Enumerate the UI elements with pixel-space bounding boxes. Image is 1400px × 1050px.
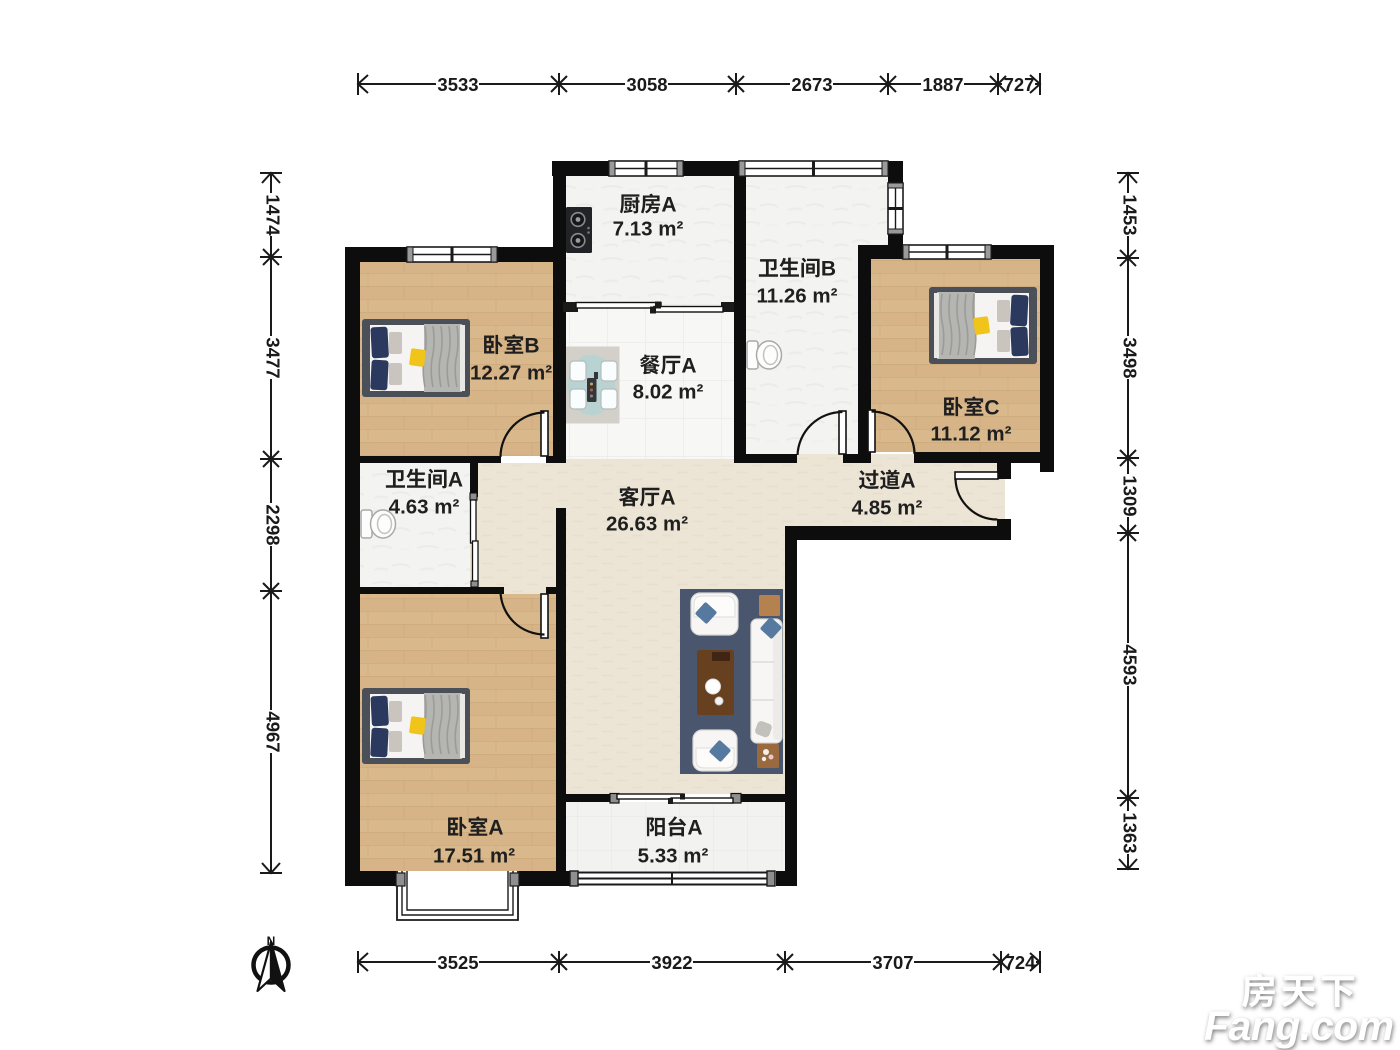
svg-text:4593: 4593 bbox=[1120, 644, 1141, 685]
svg-text:3058: 3058 bbox=[626, 74, 667, 95]
svg-text:3922: 3922 bbox=[651, 952, 692, 973]
svg-text:B: B bbox=[524, 335, 539, 358]
svg-text:17.51 m²: 17.51 m² bbox=[433, 844, 515, 867]
svg-text:3525: 3525 bbox=[437, 952, 478, 973]
svg-text:1474: 1474 bbox=[263, 194, 284, 236]
svg-text:A: A bbox=[661, 194, 676, 217]
svg-text:11.26 m²: 11.26 m² bbox=[757, 284, 838, 307]
svg-text:7.13 m²: 7.13 m² bbox=[613, 217, 684, 240]
svg-text:1453: 1453 bbox=[1120, 194, 1141, 235]
svg-text:26.63 m²: 26.63 m² bbox=[606, 512, 688, 535]
svg-text:3707: 3707 bbox=[872, 952, 913, 973]
svg-text:A: A bbox=[681, 355, 696, 378]
svg-text:4.85 m²: 4.85 m² bbox=[852, 496, 923, 519]
svg-text:Fang.com: Fang.com bbox=[1204, 1003, 1394, 1049]
svg-text:4967: 4967 bbox=[263, 711, 284, 752]
svg-text:1309: 1309 bbox=[1120, 475, 1141, 516]
svg-text:12.27 m²: 12.27 m² bbox=[470, 361, 552, 384]
svg-text:2673: 2673 bbox=[791, 74, 832, 95]
svg-text:4.63 m²: 4.63 m² bbox=[389, 495, 460, 518]
svg-text:1887: 1887 bbox=[922, 74, 963, 95]
svg-text:A: A bbox=[687, 817, 702, 840]
svg-text:A: A bbox=[488, 817, 503, 840]
svg-text:A: A bbox=[660, 487, 675, 510]
svg-text:1363: 1363 bbox=[1120, 812, 1141, 853]
svg-text:C: C bbox=[984, 397, 999, 420]
svg-text:3477: 3477 bbox=[263, 337, 284, 378]
svg-text:8.02 m²: 8.02 m² bbox=[633, 380, 704, 403]
svg-text:5.33 m²: 5.33 m² bbox=[638, 844, 709, 867]
svg-text:A: A bbox=[448, 469, 463, 492]
svg-text:B: B bbox=[821, 258, 836, 281]
svg-text:3533: 3533 bbox=[437, 74, 478, 95]
svg-text:3498: 3498 bbox=[1120, 337, 1141, 378]
svg-text:A: A bbox=[900, 470, 915, 493]
svg-text:2298: 2298 bbox=[263, 504, 284, 545]
svg-text:11.12 m²: 11.12 m² bbox=[931, 422, 1012, 445]
